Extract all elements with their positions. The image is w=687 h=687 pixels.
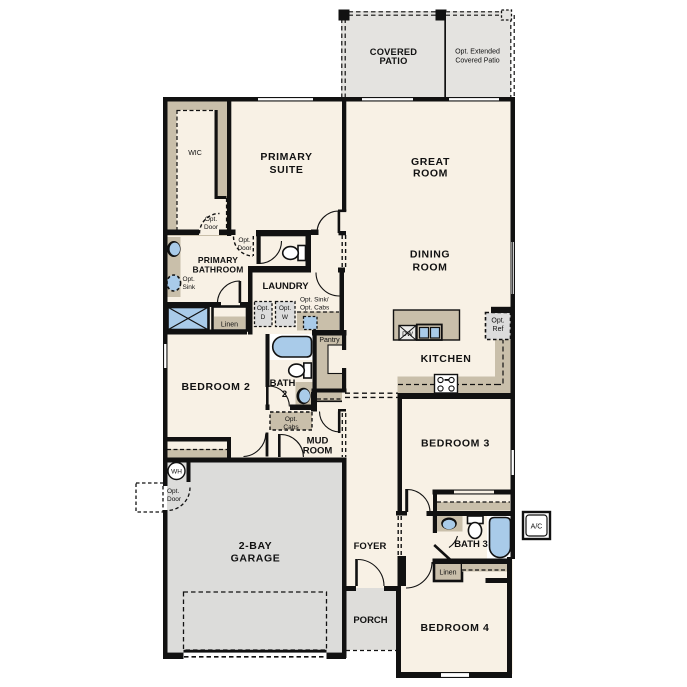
svg-text:Ref: Ref <box>493 326 504 333</box>
svg-text:A/C: A/C <box>531 524 543 531</box>
svg-text:Opt.: Opt. <box>238 237 250 244</box>
svg-text:PATIO: PATIO <box>379 56 407 66</box>
svg-text:Opt.: Opt. <box>205 216 217 223</box>
svg-text:BEDROOM 4: BEDROOM 4 <box>421 622 490 634</box>
svg-text:KITCHEN: KITCHEN <box>421 353 472 365</box>
svg-text:WH: WH <box>171 469 182 476</box>
svg-text:D: D <box>261 314 266 321</box>
svg-text:Opt.: Opt. <box>491 318 504 325</box>
svg-text:ROOM: ROOM <box>303 446 333 457</box>
svg-text:GREAT: GREAT <box>411 156 450 168</box>
svg-text:BATHROOM: BATHROOM <box>192 265 243 275</box>
svg-text:Linen: Linen <box>221 322 238 329</box>
svg-text:Opt.: Opt. <box>285 416 297 423</box>
svg-text:DW: DW <box>402 331 414 338</box>
svg-text:LAUNDRY: LAUNDRY <box>262 281 309 292</box>
svg-text:Opt. Cabs: Opt. Cabs <box>300 305 330 312</box>
svg-text:BATH: BATH <box>270 378 296 389</box>
svg-text:WIC: WIC <box>188 150 202 157</box>
svg-text:Sink: Sink <box>183 284 196 291</box>
svg-text:Opt. Sink/: Opt. Sink/ <box>300 297 329 304</box>
svg-text:PRIMARY: PRIMARY <box>260 151 312 163</box>
svg-text:SUITE: SUITE <box>270 164 304 176</box>
svg-text:Door: Door <box>204 224 219 231</box>
svg-text:Cabs: Cabs <box>283 424 299 431</box>
svg-text:2: 2 <box>282 389 287 400</box>
svg-text:BEDROOM 2: BEDROOM 2 <box>182 381 251 393</box>
svg-text:Opt.: Opt. <box>183 276 195 283</box>
svg-text:BEDROOM 3: BEDROOM 3 <box>421 438 490 450</box>
svg-text:Opt.: Opt. <box>167 488 179 495</box>
svg-text:Opt. Extended: Opt. Extended <box>455 49 500 56</box>
svg-text:ROOM: ROOM <box>413 168 448 180</box>
svg-text:Linen: Linen <box>439 570 456 577</box>
svg-text:DINING: DINING <box>410 249 450 261</box>
svg-text:Pantry: Pantry <box>319 337 340 344</box>
svg-text:Door: Door <box>237 245 252 252</box>
svg-text:FOYER: FOYER <box>354 541 387 552</box>
svg-text:Covered Patio: Covered Patio <box>455 58 499 65</box>
svg-text:2-BAY: 2-BAY <box>239 540 273 552</box>
svg-text:PORCH: PORCH <box>353 615 387 626</box>
svg-text:Opt.: Opt. <box>257 305 269 312</box>
svg-text:Opt.: Opt. <box>279 305 291 312</box>
svg-text:W: W <box>282 314 289 321</box>
svg-text:Door: Door <box>167 496 182 503</box>
svg-text:GARAGE: GARAGE <box>231 553 281 565</box>
svg-text:ROOM: ROOM <box>412 262 447 274</box>
svg-text:PRIMARY: PRIMARY <box>198 255 238 265</box>
svg-text:BATH 3: BATH 3 <box>454 539 488 550</box>
